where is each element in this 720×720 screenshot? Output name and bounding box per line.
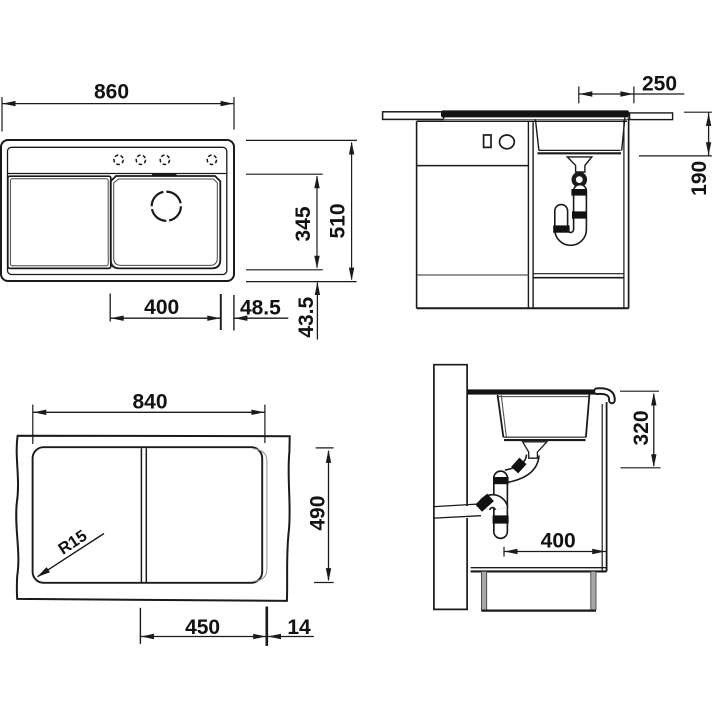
svg-text:400: 400 xyxy=(144,296,179,319)
svg-text:450: 450 xyxy=(185,616,220,639)
svg-text:250: 250 xyxy=(642,72,677,95)
svg-text:190: 190 xyxy=(688,161,711,196)
svg-text:320: 320 xyxy=(630,410,653,445)
svg-text:510: 510 xyxy=(327,203,350,238)
svg-text:860: 860 xyxy=(94,81,129,104)
svg-text:14: 14 xyxy=(287,616,311,639)
svg-text:345: 345 xyxy=(292,206,315,241)
svg-text:400: 400 xyxy=(541,530,576,553)
svg-text:43.5: 43.5 xyxy=(295,297,318,338)
svg-text:840: 840 xyxy=(132,391,167,414)
svg-text:48.5: 48.5 xyxy=(240,297,281,320)
svg-text:490: 490 xyxy=(306,496,329,531)
